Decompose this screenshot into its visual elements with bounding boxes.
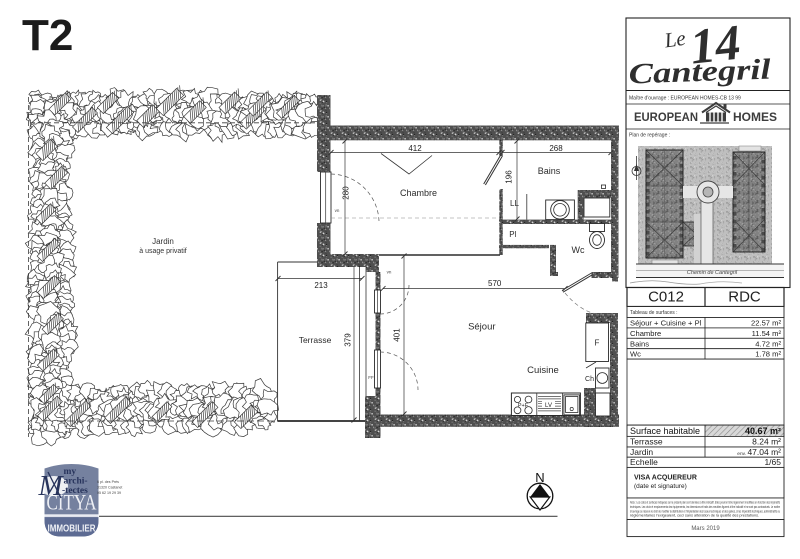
svg-text:401: 401 — [393, 328, 402, 342]
svg-text:196: 196 — [505, 170, 514, 184]
svg-text:31320 Castanet: 31320 Castanet — [97, 486, 122, 490]
svg-text:570: 570 — [488, 279, 502, 288]
svg-text:379: 379 — [344, 333, 353, 347]
svg-text:Nota : Les cotes et surfaces i: Nota : Les cotes et surfaces indiquées s… — [630, 501, 780, 505]
svg-text:Chambre: Chambre — [630, 329, 661, 338]
svg-text:Terrasse: Terrasse — [299, 335, 332, 345]
svg-text:Chambre: Chambre — [400, 188, 437, 198]
svg-text:Surface habitable: Surface habitable — [630, 426, 700, 436]
svg-text:à usage privatif: à usage privatif — [139, 248, 187, 255]
svg-text:EUROPEAN: EUROPEAN — [634, 112, 698, 124]
svg-text:1.78 m²: 1.78 m² — [755, 350, 781, 359]
svg-text:Chemin de Cantegril: Chemin de Cantegril — [687, 270, 738, 276]
svg-text:vn: vn — [335, 208, 340, 213]
svg-text:40.67 m²: 40.67 m² — [745, 426, 781, 436]
svg-text:HOMES: HOMES — [733, 112, 777, 124]
svg-text:archi-: archi- — [64, 477, 88, 487]
svg-text:4.72 m²: 4.72 m² — [755, 339, 781, 348]
svg-text:P+F: P+F — [518, 403, 529, 409]
svg-text:Tableau de surfaces :: Tableau de surfaces : — [630, 310, 678, 316]
svg-text:Cantegril: Cantegril — [628, 53, 772, 90]
svg-text:Jardin: Jardin — [630, 447, 653, 457]
svg-text:Pl: Pl — [509, 230, 516, 239]
svg-text:techniques. Les choix et empla: techniques. Les choix et emplacements de… — [630, 505, 780, 509]
svg-text:Cuisine: Cuisine — [527, 365, 559, 376]
svg-text:Mars 2019: Mars 2019 — [691, 526, 720, 532]
svg-text:Terrasse: Terrasse — [630, 437, 663, 447]
svg-text:Wc: Wc — [572, 245, 585, 255]
svg-text:env.: env. — [737, 452, 746, 457]
svg-text:8.24 m²: 8.24 m² — [752, 437, 781, 447]
svg-text:-tectes: -tectes — [62, 486, 88, 496]
svg-text:FF: FF — [368, 375, 374, 380]
svg-text:11.54 m²: 11.54 m² — [752, 329, 782, 338]
svg-text:F: F — [595, 339, 600, 348]
svg-text:47.04 m²: 47.04 m² — [747, 447, 781, 457]
svg-text:réglementaires l'exigeaient, c: réglementaires l'exigeaient, ceci sans a… — [630, 514, 759, 518]
svg-text:LV: LV — [545, 403, 552, 409]
svg-text:Echelle: Echelle — [630, 457, 658, 467]
svg-text:C012: C012 — [648, 289, 684, 306]
svg-text:my: my — [64, 467, 77, 477]
svg-text:Wc: Wc — [630, 350, 641, 359]
svg-text:Séjour + Cuisine + Pl: Séjour + Cuisine + Pl — [630, 319, 702, 328]
svg-text:T2: T2 — [22, 11, 73, 60]
svg-text:Plan de repérage :: Plan de repérage : — [629, 133, 670, 139]
svg-text:IMMOBILIER: IMMOBILIER — [48, 524, 97, 535]
svg-text:Le: Le — [662, 26, 687, 53]
svg-text:d'ouvrage se réserve le droit: d'ouvrage se réserve le droit de modifie… — [630, 509, 780, 513]
svg-text:Séjour: Séjour — [468, 322, 495, 333]
svg-text:Ch: Ch — [585, 376, 594, 383]
svg-text:(date et signature): (date et signature) — [634, 483, 687, 490]
svg-text:LL: LL — [510, 199, 519, 208]
svg-text:Jardin: Jardin — [152, 237, 174, 246]
svg-text:213: 213 — [314, 281, 328, 290]
svg-text:Bains: Bains — [538, 166, 561, 176]
svg-text:280: 280 — [342, 186, 351, 200]
svg-text:Bains: Bains — [630, 339, 649, 348]
svg-text:vn: vn — [387, 270, 392, 275]
svg-text:RDC: RDC — [728, 289, 761, 306]
svg-text:Maître d'ouvrage : EUROPEAN HO: Maître d'ouvrage : EUROPEAN HOMES-CB 13 … — [629, 96, 741, 102]
svg-text:6 pl. des Prés: 6 pl. des Prés — [97, 480, 119, 484]
svg-text:412: 412 — [408, 144, 422, 153]
svg-text:22.57 m²: 22.57 m² — [751, 319, 781, 328]
svg-text:VISA ACQUEREUR: VISA ACQUEREUR — [634, 475, 697, 482]
svg-text:1/65: 1/65 — [764, 457, 781, 467]
svg-text:05 62 19 29 39: 05 62 19 29 39 — [97, 491, 121, 495]
svg-text:268: 268 — [549, 144, 563, 153]
